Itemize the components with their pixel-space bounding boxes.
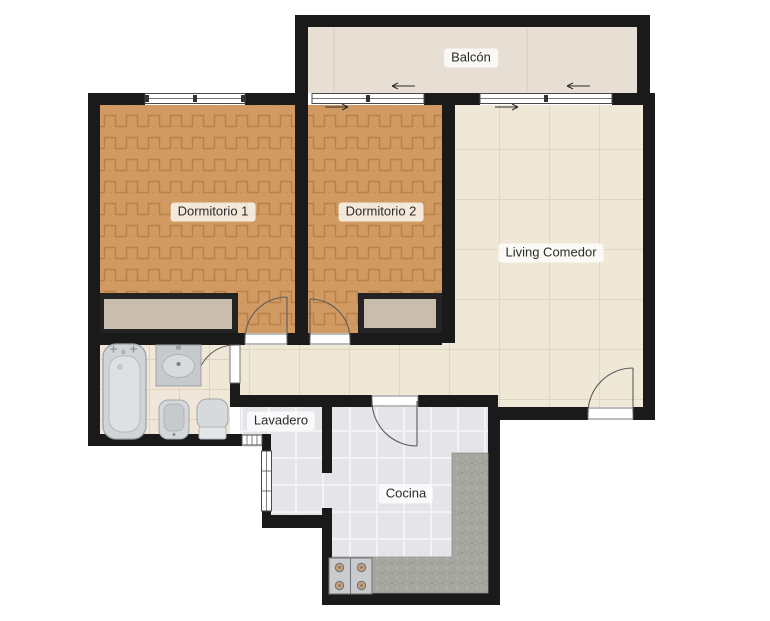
window-dormitorio-1 (145, 94, 245, 104)
window-lavadero-tall (262, 451, 272, 511)
room-label-lavadero: Lavadero (247, 412, 315, 431)
floor-plan-drawing (0, 0, 770, 621)
window-lavadero-small (242, 435, 262, 445)
bathtub-icon (103, 344, 146, 439)
hall-floor (240, 345, 442, 395)
room-label-living: Living Comedor (498, 244, 603, 263)
closet-dormitorio-1 (98, 293, 238, 333)
room-label-balcon: Balcón (444, 49, 498, 68)
sink-icon (156, 345, 201, 386)
bidet-icon (159, 400, 189, 439)
sliding-door-living (480, 94, 612, 104)
stove-icon (329, 558, 372, 594)
room-label-dormitorio-1: Dormitorio 1 (171, 203, 256, 222)
floor-plan: Balcón Dormitorio 1 Dormitorio 2 Living … (0, 0, 770, 621)
sliding-door-dormitorio-2 (312, 94, 424, 104)
room-label-dormitorio-2: Dormitorio 2 (339, 203, 424, 222)
closet-dormitorio-2 (358, 293, 442, 333)
room-label-cocina: Cocina (379, 485, 433, 504)
toilet-icon (197, 399, 228, 439)
